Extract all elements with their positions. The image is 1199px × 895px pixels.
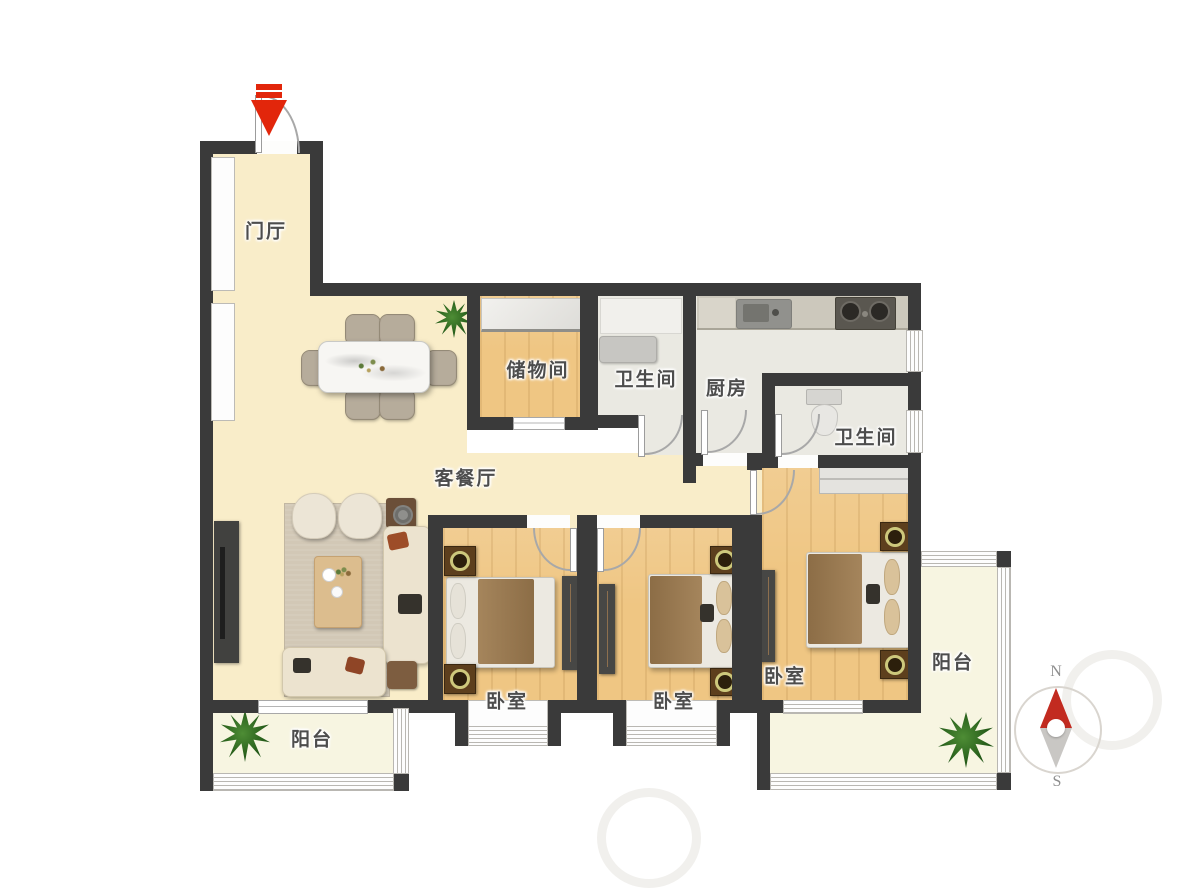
wardrobe (562, 576, 578, 670)
wall (428, 515, 443, 713)
wall-corner (997, 773, 1011, 790)
door-opening (703, 453, 747, 466)
wall (455, 700, 468, 746)
bed-pillow (450, 583, 466, 619)
wall (730, 700, 762, 713)
closet (819, 464, 918, 494)
wall (561, 700, 613, 713)
storage-cabinet (481, 298, 586, 332)
wall (908, 296, 921, 332)
door-leaf (570, 528, 577, 572)
wall (590, 415, 640, 428)
dining-chair (426, 351, 456, 385)
wall (613, 700, 626, 746)
bed-accent-pillow (866, 584, 880, 604)
door-opening (778, 455, 818, 468)
balcony-window (921, 551, 997, 567)
balcony-window (213, 773, 394, 791)
room-label-kitchen: 厨房 (706, 380, 748, 399)
bed-pillow (716, 619, 732, 653)
bathroom-vanity (599, 336, 657, 363)
dining-chair (346, 389, 380, 419)
bed-pillow (884, 599, 900, 635)
lamp-icon (450, 669, 470, 689)
wall (762, 700, 783, 713)
sliding-door (258, 700, 368, 714)
wall (818, 455, 921, 468)
room-label-bathroom-1: 卫生间 (614, 371, 677, 390)
wall-corner (393, 773, 409, 791)
kitchen-sink-basin (743, 304, 769, 322)
wall (310, 283, 921, 296)
balcony-window (770, 773, 997, 790)
lamp-icon (450, 551, 470, 571)
wall (683, 296, 696, 483)
toilet-tank (806, 389, 842, 405)
stove-burner (869, 301, 890, 322)
wall (580, 296, 598, 428)
wardrobe (599, 584, 615, 674)
compass-north-label: N (1050, 664, 1062, 680)
bed-blanket (650, 576, 702, 664)
room-label-bedroom-2: 卧室 (653, 693, 695, 712)
bed-pillow (884, 559, 900, 595)
bed-blanket (808, 554, 862, 644)
tv-screen (220, 547, 225, 639)
watermark-circle (597, 788, 701, 888)
door-leaf (750, 470, 757, 515)
bed-pillow (716, 581, 732, 615)
room-label-master-bedroom: 卧室 (764, 668, 806, 687)
room-label-storage: 储物间 (506, 362, 569, 381)
wall (443, 700, 455, 713)
nightstand (444, 664, 476, 694)
room-label-balcony-left: 阳台 (291, 731, 333, 750)
dining-chair (380, 389, 414, 419)
wall (908, 452, 921, 713)
wall (748, 515, 762, 713)
nightstand (444, 546, 476, 576)
room-label-entry-hall: 门厅 (245, 223, 287, 242)
door-leaf (597, 528, 604, 572)
wall (863, 700, 921, 713)
stove-burner (840, 301, 861, 322)
wall (310, 141, 323, 283)
tv-console (214, 521, 239, 663)
shower-tray (600, 298, 682, 334)
door-leaf (701, 410, 708, 455)
coffee-table-cup (331, 586, 343, 598)
door-opening (597, 515, 640, 528)
wall (762, 373, 921, 386)
wall (213, 700, 258, 713)
wall (757, 713, 770, 790)
stove-knob (862, 311, 868, 317)
window (783, 700, 863, 714)
side-table-lamp (393, 505, 413, 525)
door-leaf (638, 415, 645, 457)
wall (548, 700, 561, 746)
balcony-window (997, 567, 1011, 773)
room-label-bedroom-1: 卧室 (486, 693, 528, 712)
sofa-pillow (398, 594, 422, 614)
bed-pillow (450, 623, 466, 659)
window (211, 303, 235, 421)
wall (747, 453, 762, 470)
wall (717, 700, 730, 746)
wall (467, 296, 480, 430)
bay-window (468, 726, 548, 746)
window (906, 330, 923, 372)
window (211, 157, 235, 291)
room-label-balcony-right: 阳台 (932, 654, 974, 673)
armchair (338, 493, 382, 539)
entry-arrow-icon (256, 92, 282, 98)
wall (762, 373, 775, 468)
wall (467, 417, 513, 430)
nightstand (880, 522, 910, 551)
lamp-icon (885, 655, 905, 675)
wall (200, 141, 257, 154)
entry-arrow-icon (251, 100, 287, 136)
ottoman (387, 661, 417, 689)
entry-arrow-icon (256, 84, 282, 90)
kitchen-cabinet (699, 298, 735, 328)
bed-blanket (478, 579, 534, 664)
door-leaf (775, 414, 782, 457)
window (906, 410, 923, 453)
table-centerpiece (352, 355, 394, 377)
room-label-bathroom-2: 卫生间 (834, 429, 897, 448)
kitchen-faucet (772, 309, 779, 316)
sofa-pillow (293, 658, 311, 673)
sliding-door (513, 417, 565, 430)
wall (577, 515, 597, 700)
bed-accent-pillow (700, 604, 714, 622)
lamp-icon (885, 527, 905, 547)
bay-window (626, 726, 717, 746)
wall (732, 515, 748, 713)
door-opening (527, 515, 570, 528)
armchair (292, 493, 336, 539)
wall-corner (997, 551, 1011, 567)
wardrobe (760, 570, 775, 662)
room-label-living-dining: 客餐厅 (434, 470, 497, 489)
compass-hub (1047, 719, 1065, 737)
nightstand (880, 650, 910, 679)
floor-plan: 门厅 客餐厅 储物间 卫生间 厨房 卫生间 卧室 卧室 卧室 阳台 阳台 N S (0, 0, 1199, 895)
balcony-window (393, 708, 409, 774)
compass-south-label: S (1053, 774, 1062, 790)
coffee-table-sprig (334, 566, 354, 578)
